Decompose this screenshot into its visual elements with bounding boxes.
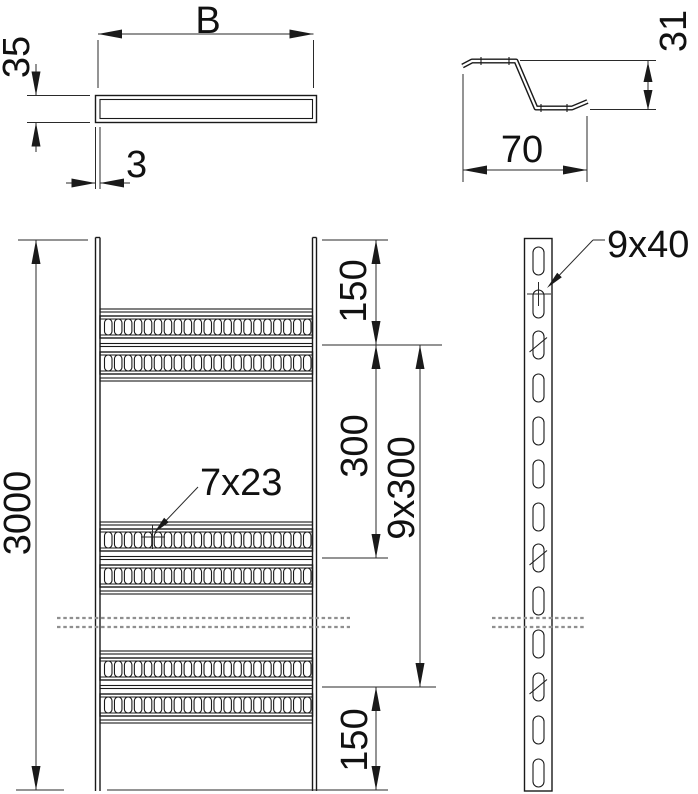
dim-label-B: B (195, 0, 220, 42)
dim-label-150-bottom: 150 (334, 708, 376, 771)
dim-label-3: 3 (126, 144, 147, 186)
label-rung-slot-7x23: 7x23 (200, 462, 282, 504)
technical-drawing-cable-ladder: B 35 3 (0, 0, 698, 794)
label-rail-slot-9x40: 9x40 (607, 224, 689, 266)
dim-label-300: 300 (334, 414, 376, 477)
dim-label-9x300: 9x300 (381, 436, 423, 540)
dim-label-3000: 3000 (0, 471, 39, 556)
dim-label-35: 35 (0, 36, 38, 78)
dim-label-31: 31 (653, 10, 695, 52)
dim-label-70: 70 (501, 129, 543, 171)
dim-label-150-top: 150 (333, 259, 375, 322)
